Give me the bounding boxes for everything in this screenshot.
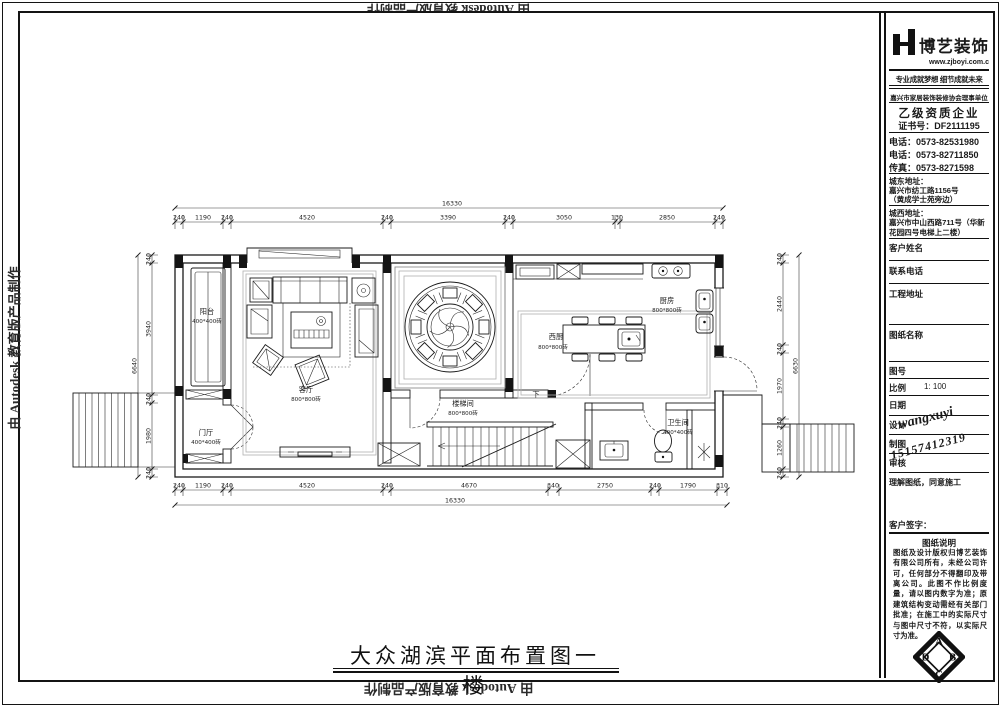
balcony-divider-window (186, 390, 223, 399)
title-underline-2 (333, 671, 619, 673)
accent-chair-1 (253, 345, 284, 376)
label-kitchen: 厨房 (660, 296, 674, 305)
accent-chair-2 (295, 355, 329, 389)
dim-top-3: 4520 (299, 215, 315, 222)
address-west: 嘉兴市中山西路711号（华新花园四号电梯上二楼） (889, 218, 989, 238)
divider (889, 69, 989, 71)
label-stair-down: 下 (532, 390, 539, 399)
titleblock: 博艺装饰 www.zjboyi.com.c 专业成就梦想 细节成就未来 嘉兴市家… (886, 11, 992, 678)
dim-right-2: 240 (777, 343, 784, 355)
dim-bottom-9: 1790 (680, 483, 696, 490)
label-foyer-tile: 400*400砖 (191, 438, 221, 446)
label-foyer: 门厅 (199, 428, 213, 437)
divider (889, 532, 989, 534)
rear-exterior-door (714, 357, 757, 391)
dimension-lines (136, 206, 802, 508)
right-wall-window (714, 288, 724, 346)
island-table (563, 317, 645, 361)
dim-bottom-6: 340 (547, 483, 559, 490)
counter (582, 264, 643, 274)
label-bathroom: 卫生间 (667, 418, 689, 427)
foyer-double-door (231, 405, 253, 449)
interior-stairs (427, 422, 556, 467)
dim-right-0: 240 (777, 253, 784, 265)
field-drawing-name: 图纸名称 (889, 329, 989, 341)
dim-right-1: 2440 (777, 296, 784, 312)
label-living-tile: 800*800砖 (291, 395, 321, 403)
autodesk-banner-top-text: 由 Autodesk 教育版产品制作 (367, 3, 530, 11)
dim-top-7: 3050 (556, 215, 572, 222)
dim-left-2: 240 (146, 393, 153, 405)
dim-top-total: 16330 (442, 201, 462, 208)
stair-arrow (438, 443, 500, 449)
agree-statement: 理解图纸，同意施工 (889, 477, 989, 488)
dim-bottom-5: 4670 (461, 483, 477, 490)
balcony-window (191, 268, 225, 386)
label-balcony: 阳台 (200, 307, 214, 316)
exterior-stairs-left (73, 393, 175, 467)
dim-bottom-8: 240 (649, 483, 661, 490)
company-website: www.zjboyi.com.c (916, 59, 989, 66)
dim-right-4: 240 (777, 417, 784, 429)
understair-cabinets (378, 440, 590, 468)
round-dining-table (405, 282, 495, 372)
phone-1: 电话：0573-82531980 (889, 135, 989, 148)
dim-left-3: 1980 (146, 428, 153, 444)
dim-right-3: 1970 (777, 378, 784, 394)
dim-top-0: 240 (173, 215, 185, 222)
exterior-stairs-right (723, 395, 854, 472)
foyer-bottom-window (186, 454, 223, 463)
divider (889, 88, 989, 89)
customer-signature-label: 客户签字： (889, 519, 989, 531)
stamp-letter-c: C (935, 669, 943, 681)
divider (889, 205, 989, 206)
kitchen-hall-door (548, 354, 590, 396)
divider (889, 173, 989, 174)
dim-bottom-10: 310 (716, 483, 728, 490)
dim-left-0: 240 (146, 253, 153, 265)
label-kitchen-tile: 800*800砖 (652, 306, 682, 314)
dim-right-total: 6630 (793, 358, 800, 374)
dim-top-2: 240 (221, 215, 233, 222)
drawing-title: 大众湖滨平面布置图一楼 (340, 640, 610, 700)
field-drawing-number: 图号 (889, 365, 989, 377)
divider (889, 434, 989, 435)
stamp-letter-d: D (922, 652, 930, 664)
dim-top-6: 240 (503, 215, 515, 222)
kitchen-sink (696, 290, 713, 333)
interior-walls (223, 263, 715, 469)
phone-2: 电话：0573-82711850 (889, 148, 989, 161)
divider (889, 472, 989, 473)
dim-bottom-3: 4520 (299, 483, 315, 490)
living-room-furniture (247, 277, 378, 457)
drawing-sheet: 由 Autodesk 教育版产品制作 由 Autodesk 教育版产品制作 由 … (0, 0, 1000, 707)
dim-left-total: 6640 (132, 358, 139, 374)
titleblock-left-border-1 (879, 11, 881, 678)
divider (889, 85, 989, 86)
fridge (516, 265, 554, 279)
dim-bottom-0: 240 (173, 483, 185, 490)
label-west-kitchen: 西厨 (549, 332, 563, 341)
divider (889, 324, 989, 325)
dim-top-5: 3390 (440, 215, 456, 222)
certificate-number: 证书号：DF2111195 (889, 119, 989, 132)
dim-top-4: 240 (381, 215, 393, 222)
dim-left-4: 240 (146, 467, 153, 479)
divider (889, 102, 989, 103)
dim-bottom-2: 240 (221, 483, 233, 490)
dim-top-8: 130 (611, 215, 623, 222)
address-east-2: （黄成学士苑旁边） (889, 195, 989, 205)
dim-bottom-4: 240 (381, 483, 393, 490)
autodesk-banner-left: 由 Autodesk 教育版产品制作 (4, 199, 19, 497)
divider (889, 395, 989, 396)
stamp-letter-b: B (949, 652, 956, 664)
dim-bottom-7: 2750 (597, 483, 613, 490)
field-scale-value: 1: 100 (924, 382, 989, 391)
dim-bottom-total: 16330 (445, 498, 465, 505)
field-customer-name: 客户姓名 (889, 242, 989, 254)
divider (889, 378, 989, 379)
dim-top-1: 1190 (195, 215, 211, 222)
kitchen-counter (513, 264, 713, 333)
hall-door (410, 398, 440, 428)
label-stairwell-tile: 800*800砖 (448, 409, 478, 417)
label-living: 客厅 (299, 385, 313, 394)
label-west-kitchen-tile: 800*800砖 (538, 343, 568, 351)
company-name: 博艺装饰 (919, 33, 989, 57)
floor-drain (698, 443, 710, 461)
title-underline-1 (333, 668, 619, 669)
company-slogan: 专业成就梦想 细节成就未来 (889, 74, 989, 85)
label-balcony-tile: 400*400砖 (192, 317, 222, 325)
divider (889, 260, 989, 261)
label-stairwell: 楼梯间 (452, 399, 474, 408)
association-line: 嘉兴市家居装饰装修协会理事单位 (889, 92, 989, 102)
stamp-letter-a: A (935, 636, 943, 648)
dim-right-5: 1260 (777, 440, 784, 456)
divider (889, 238, 989, 239)
company-stamp: A B C D (889, 631, 989, 688)
floor-plan: 240 1190 240 4520 240 3390 240 3050 130 … (25, 192, 870, 532)
gas-stove (652, 264, 690, 278)
bathroom-fixtures (600, 430, 710, 462)
dim-bottom-1: 1190 (195, 483, 211, 490)
chaise-right (355, 305, 378, 357)
notes-body: 图纸及设计版权归博艺装饰有限公司所有，未经公司许可，任何部分不得翻印及带离公司。… (893, 548, 987, 641)
bay-window (239, 248, 360, 268)
dim-right-6: 240 (777, 467, 784, 479)
divider (889, 132, 989, 133)
field-project-address: 工程地址 (889, 288, 989, 300)
dim-top-9: 2850 (659, 215, 675, 222)
end-table-right (352, 278, 375, 303)
divider (889, 361, 989, 362)
field-contact-phone: 联系电话 (889, 265, 989, 277)
divider (889, 283, 989, 284)
autodesk-banner-top: 由 Autodesk 教育版产品制作 (18, 3, 880, 11)
dim-top-10: 240 (713, 215, 725, 222)
dim-left-1: 3940 (146, 321, 153, 337)
label-bathroom-tile: 400*400砖 (663, 428, 693, 436)
